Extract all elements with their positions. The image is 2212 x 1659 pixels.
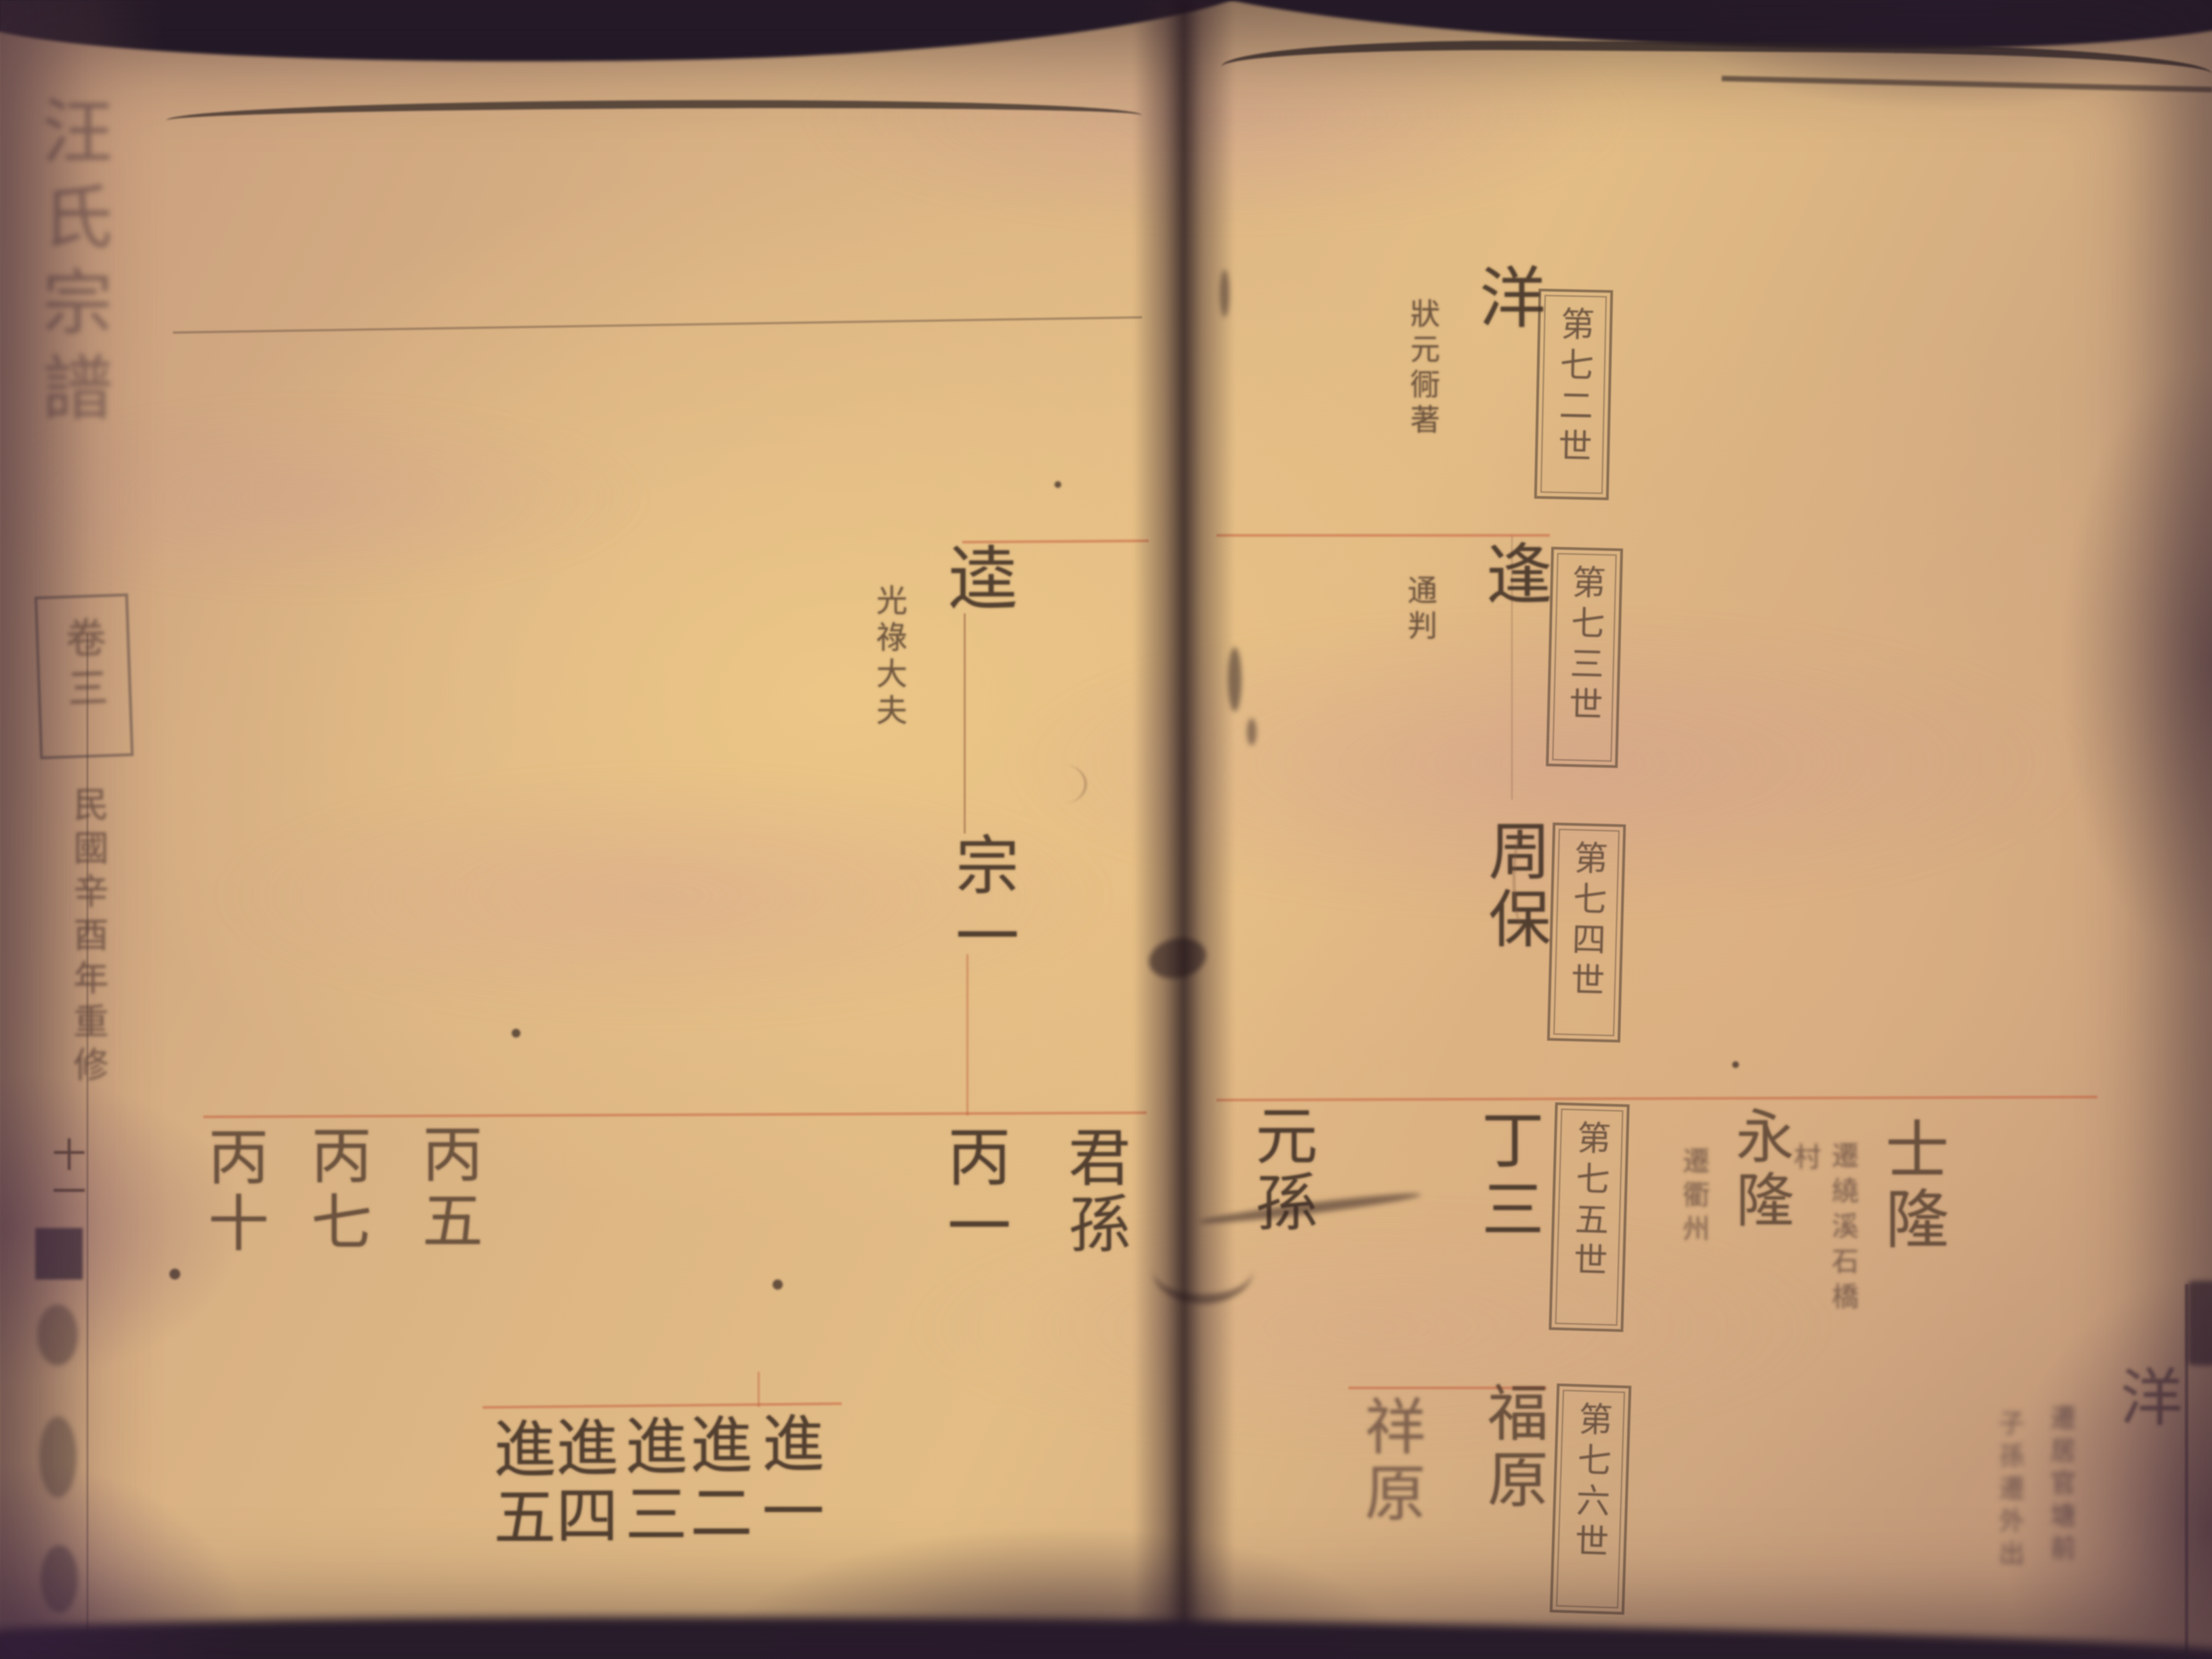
spine-volume-box: 卷三: [35, 594, 134, 760]
spine-ink-block: [35, 1228, 83, 1279]
annotation-guanglu-dafu: 光祿大夫: [867, 584, 912, 731]
name-kui: 逵: [927, 542, 1027, 611]
generation-box-76-label: 第七六世: [1564, 1401, 1618, 1565]
ink-dot-1: [512, 1029, 520, 1038]
red-rule-gen73-right: [1216, 1096, 2097, 1102]
binding-gutter: [1133, 0, 1235, 1659]
generation-box-75-label: 第七五世: [1563, 1120, 1616, 1284]
red-connector-zongyi: [966, 954, 968, 1115]
book-top-edge-left: [0, 0, 1282, 74]
annotation-yonglong: 遷衢州: [1674, 1147, 1713, 1248]
spine-smudge-3: [41, 1545, 78, 1613]
spine-volume-label: 卷三: [52, 597, 116, 756]
edge-stain: [2188, 1281, 2212, 1366]
fold-mark-3: [1247, 718, 1256, 745]
name-yang-bottom: 洋: [2101, 1365, 2191, 1427]
left-page-top-border: [166, 98, 1142, 145]
annotation-zhuangyuan: 狀元衕著: [1400, 298, 1443, 439]
name-bingshi: 丙十: [188, 1125, 276, 1258]
spine-page-number: 十一: [42, 1137, 91, 1210]
red-rule-gen72-right: [1216, 534, 1550, 537]
name-yonglong: 永隆: [1717, 1106, 1802, 1233]
generation-box-75: 第七五世: [1549, 1103, 1629, 1332]
name-xiangyuan: 祥原: [1345, 1395, 1433, 1528]
name-yang-top: 洋: [1458, 263, 1555, 329]
photo-vignette: [0, 0, 2212, 1659]
annotation-yang-bottom-2: 子孫遷外出: [1991, 1410, 2028, 1572]
spine-edition-note: 民國辛酉年重修: [62, 786, 113, 1090]
ink-dot-5: [1732, 1061, 1739, 1068]
name-zongyi: 宗一: [935, 832, 1027, 973]
spine-book-title: 汪氏宗譜: [20, 95, 123, 436]
generation-box-76: 第七六世: [1550, 1383, 1632, 1614]
name-bingwu: 丙五: [403, 1122, 491, 1255]
ink-dot-4: [1054, 481, 1061, 488]
red-rule-gen73-left: [203, 1111, 1147, 1118]
connector-kui-zongyi: [964, 613, 966, 834]
generation-box-73-label: 第七三世: [1558, 564, 1611, 728]
generation-box-74-label: 第七四世: [1560, 840, 1613, 1004]
left-page-header-rule: [173, 316, 1142, 333]
name-shilong: 士隆: [1865, 1117, 1957, 1255]
paper-mottling: [0, 0, 2212, 1659]
red-connector-down: [758, 1372, 760, 1407]
annotation-shilong-2: 村: [1785, 1143, 1824, 1170]
name-bingyi: 丙一: [927, 1124, 1019, 1262]
name-bingqi: 丙七: [291, 1124, 380, 1256]
name-fuyuan: 福原: [1468, 1381, 1556, 1514]
spine-smudge-1: [37, 1305, 78, 1366]
book-bottom-edge: [0, 1610, 2212, 1659]
spine-smudge-2: [39, 1416, 77, 1498]
genealogy-book-photo: 第七二世 第七三世 第七四世 第七五世 第七六世 汪氏宗譜 卷三 民國辛酉年重修…: [0, 0, 2212, 1659]
annotation-shilong-1: 遷繞溪石橋: [1823, 1141, 1862, 1317]
name-jinwu: 進五: [474, 1416, 565, 1552]
name-dingsan: 丁三: [1462, 1107, 1553, 1246]
ink-dot-3: [169, 1269, 180, 1279]
name-junsun: 君孫: [1049, 1125, 1139, 1258]
annotation-yang-bottom-1: 遷居官塘前: [2043, 1404, 2080, 1567]
ink-dot-2: [773, 1279, 783, 1290]
red-rule-gen74-left: [483, 1402, 842, 1409]
bracket-mark-2: [1513, 825, 1536, 933]
generation-box-72-label: 第七二世: [1548, 306, 1600, 469]
bracket-mark-1: [1052, 764, 1087, 804]
name-feng: 逢: [1465, 539, 1561, 606]
annotation-tongpan: 通判: [1397, 575, 1441, 645]
